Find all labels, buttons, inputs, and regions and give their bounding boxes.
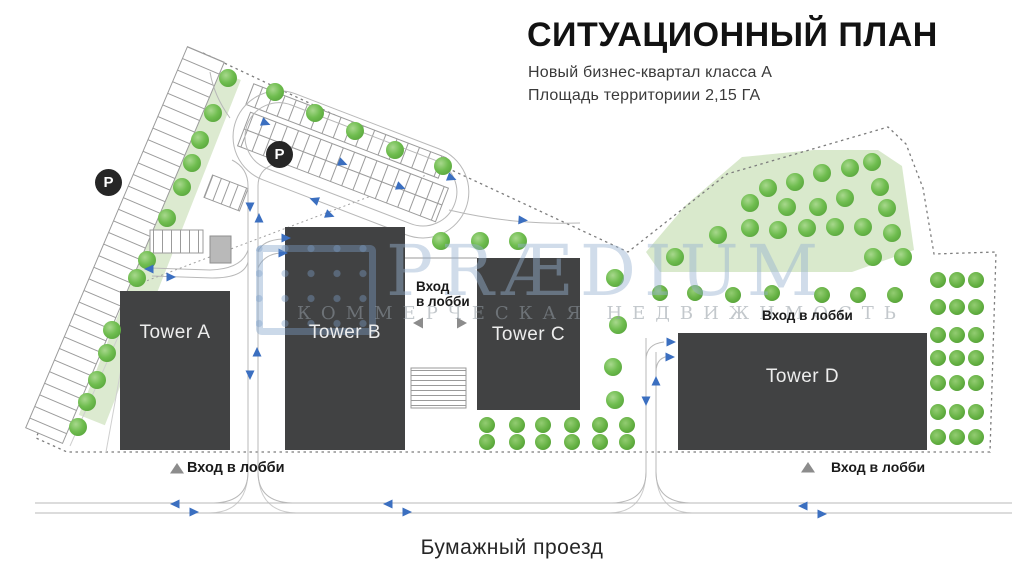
lobby-entrance-line2: в лобби [416,294,470,309]
tower-b-label: Tower B [285,322,405,344]
lobby-entrance-label-bottom-right: Вход в лобби [831,459,925,475]
entrance-arrow-up-icon [170,463,184,474]
lobby-entrance-label-d-top: Вход в лобби [762,308,853,323]
entrance-arrow-up-icon [801,462,815,473]
lobby-entrance-line1: Вход [416,279,470,294]
tower-d-label: Tower D [678,366,927,388]
tower-a-label: Tower A [120,322,230,344]
service-building [210,236,231,263]
tower-a-footprint [120,291,230,450]
subtitle-line-2: Площадь территориии 2,15 ГА [528,87,760,105]
tower-c-label: Tower C [477,324,580,346]
parking-badge-icon: P [266,141,293,168]
stairs-hatch [411,368,466,408]
lobby-entrance-label-bc: Вход в лобби [416,279,470,309]
page-title: СИТУАЦИОННЫЙ ПЛАН [527,16,938,55]
lobby-entrance-label-bottom-left: Вход в лобби [187,460,285,476]
site-plan-page: { "header": { "title": "СИТУАЦИОННЫЙ ПЛА… [0,0,1024,573]
subtitle-line-1: Новый бизнес-квартал класса А [528,64,772,82]
street-name: Бумажный проезд [0,536,1024,560]
parking-badge-icon: P [95,169,122,196]
tower-d-footprint [678,333,927,450]
